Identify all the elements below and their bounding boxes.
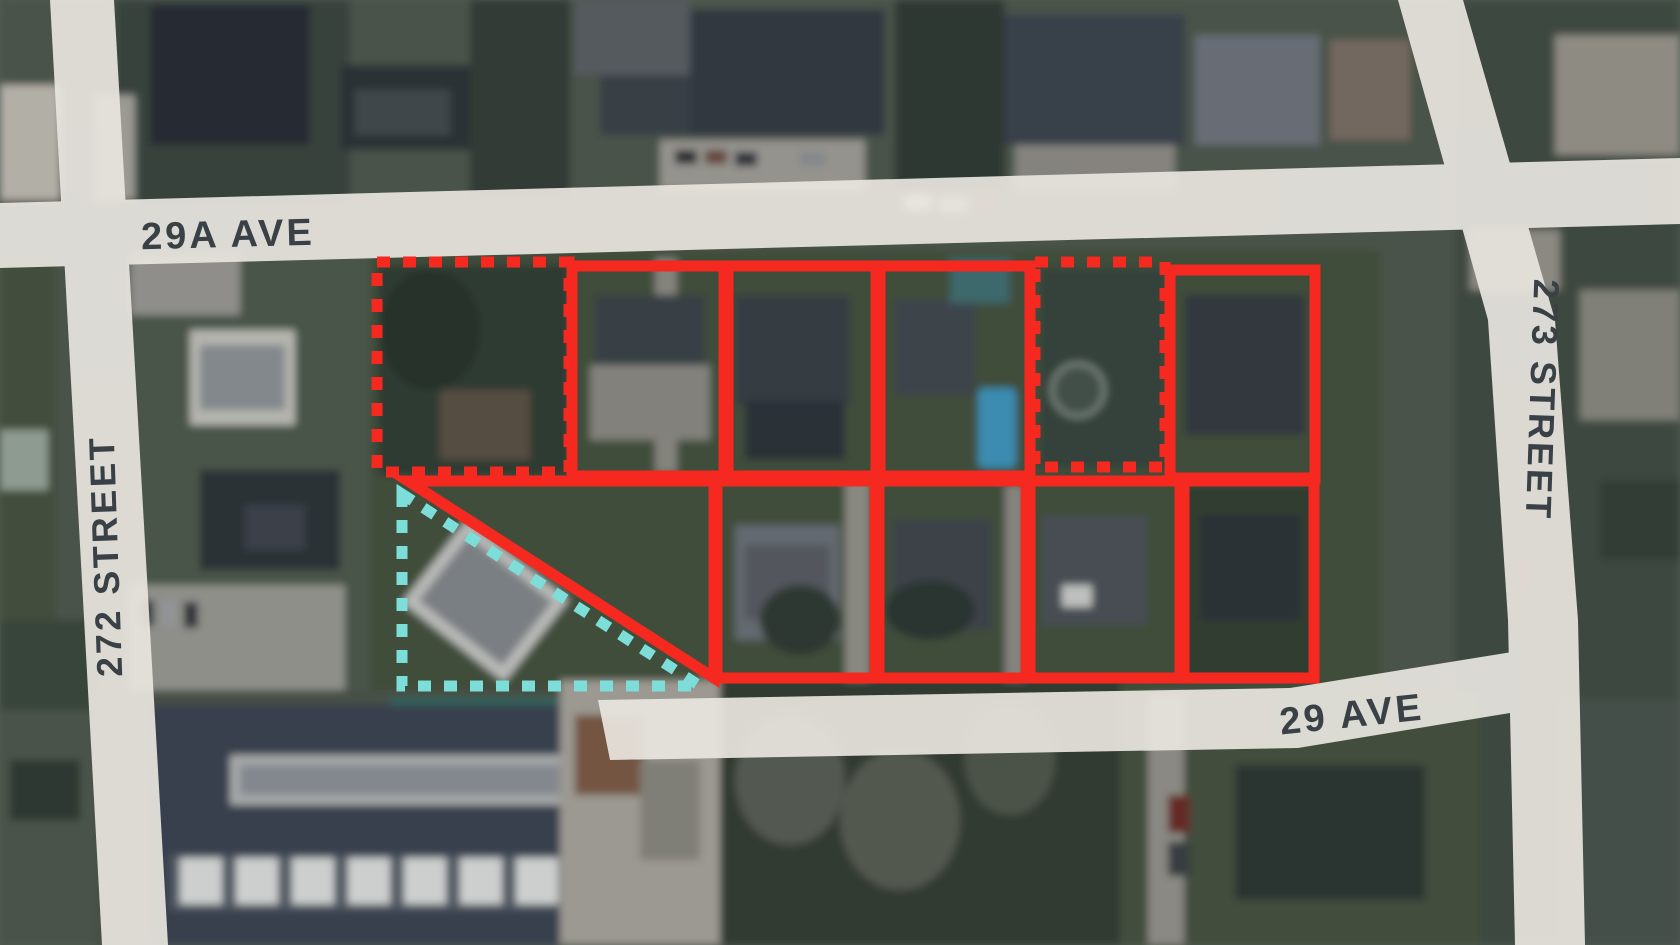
label-29a-ave: 29A AVE [140,212,315,259]
aerial-map: 29A AVE 272 STREET 273 STREET 29 AVE [0,0,1680,945]
map-canvas: 29A AVE 272 STREET 273 STREET 29 AVE [0,0,1680,945]
label-273-street: 273 STREET [1518,278,1567,521]
label-272-street: 272 STREET [81,434,130,677]
